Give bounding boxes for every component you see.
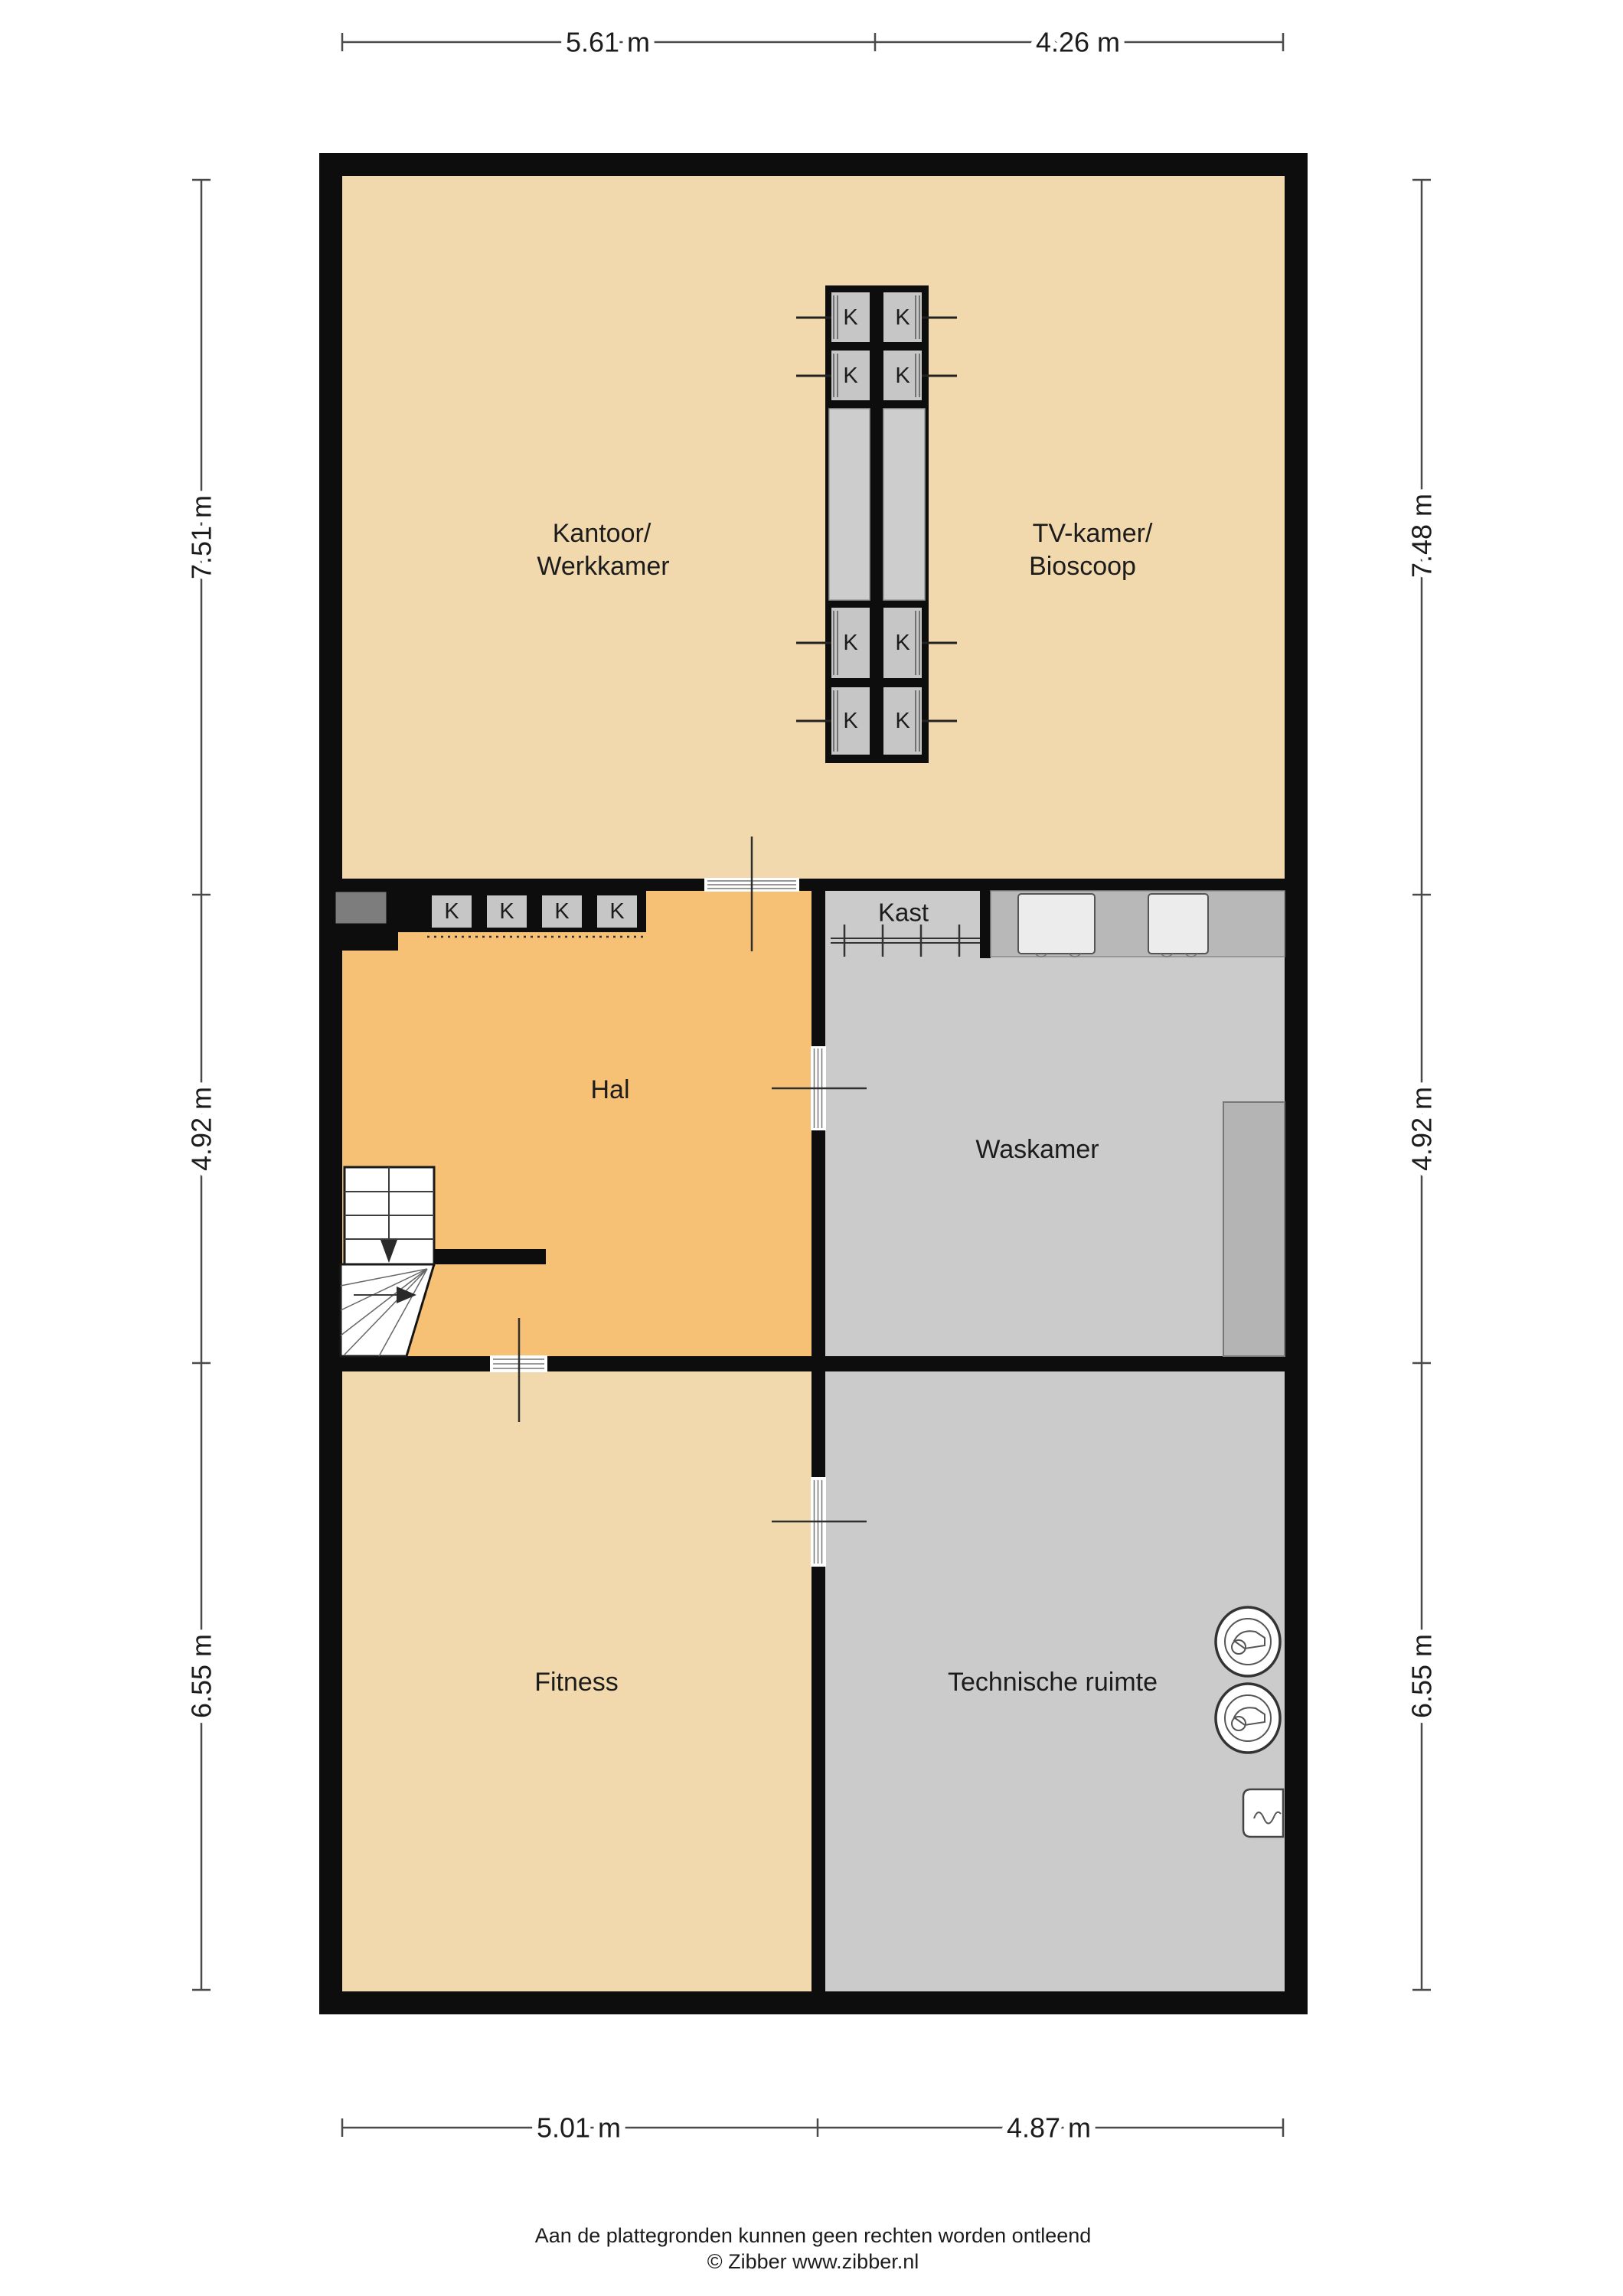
- room-label-fitness: Fitness: [534, 1668, 619, 1697]
- hal-closet-k-label: K: [609, 899, 625, 924]
- dimension-label: 4.92 m: [186, 1087, 217, 1171]
- floorplan-drawing: K K K K K K K K K K K K: [0, 0, 1623, 2296]
- dimension-label: 6.55 m: [186, 1634, 217, 1718]
- duct-box: [335, 891, 387, 925]
- closet-k-label: K: [843, 631, 858, 655]
- closet-k-label: K: [895, 709, 910, 733]
- dimension-bottom: 5.01 m 4.87 m: [342, 2112, 1283, 2144]
- dimension-label: 5.01 m: [537, 2112, 621, 2144]
- footer-copyright: © Zibber www.zibber.nl: [707, 2250, 919, 2273]
- room-label-kantoor-line1: Kantoor/: [553, 519, 651, 548]
- dryer-icon: [1148, 894, 1208, 954]
- room-floor-waskamer: [825, 891, 1285, 1356]
- closet-k-label: K: [895, 631, 910, 655]
- dimension-label: 4.87 m: [1007, 2112, 1091, 2144]
- dimension-left: 7.51 m 4.92 m 6.55 m: [186, 180, 217, 1990]
- closet-k-label: K: [895, 305, 910, 330]
- counter: [1223, 1102, 1285, 1356]
- room-label-tvkamer-line2: Bioscoop: [1029, 552, 1136, 581]
- closet-tall-cell: [883, 409, 925, 600]
- washer-icon: [1018, 894, 1095, 954]
- boiler-icon: [1216, 1684, 1280, 1753]
- closet-k-label: K: [843, 364, 858, 388]
- dimension-label: 5.61 m: [566, 27, 650, 58]
- dimension-label: 7.48 m: [1406, 494, 1438, 578]
- dimension-right: 7.48 m 4.92 m 6.55 m: [1406, 180, 1438, 1990]
- room-label-tvkamer-line1: TV-kamer/: [1033, 519, 1153, 548]
- closet-k-label: K: [895, 364, 910, 388]
- footer: Aan de plattegronden kunnen geen rechten…: [535, 2224, 1092, 2273]
- footer-disclaimer: Aan de plattegronden kunnen geen rechten…: [535, 2224, 1092, 2247]
- duct-step-wall: [335, 932, 398, 951]
- dimension-top: 5.61 m 4.26 m: [342, 27, 1283, 58]
- room-label-technische: Technische ruimte: [948, 1668, 1158, 1697]
- floorplan-page: K K K K K K K K K K K K: [0, 0, 1623, 2296]
- hal-closet-k-label: K: [554, 899, 570, 924]
- closet-k-label: K: [843, 305, 858, 330]
- hal-closet-k-label: K: [444, 899, 459, 924]
- room-label-hal: Hal: [590, 1075, 629, 1104]
- dimension-label: 4.26 m: [1036, 27, 1120, 58]
- boiler-icon: [1216, 1607, 1280, 1676]
- hal-closet-k-label: K: [499, 899, 514, 924]
- closet-k-label: K: [843, 709, 858, 733]
- stairs-side-wall: [434, 1249, 546, 1264]
- dimension-label: 4.92 m: [1406, 1087, 1438, 1171]
- meter-icon: [1243, 1789, 1283, 1837]
- dimension-label: 7.51 m: [186, 495, 217, 579]
- dimension-label: 6.55 m: [1406, 1634, 1438, 1718]
- kast-stub-wall: [980, 891, 991, 958]
- room-label-kast: Kast: [878, 899, 929, 927]
- room-label-kantoor-line2: Werkkamer: [537, 552, 669, 581]
- room-label-waskamer: Waskamer: [975, 1135, 1099, 1164]
- closet-tall-cell: [829, 409, 870, 600]
